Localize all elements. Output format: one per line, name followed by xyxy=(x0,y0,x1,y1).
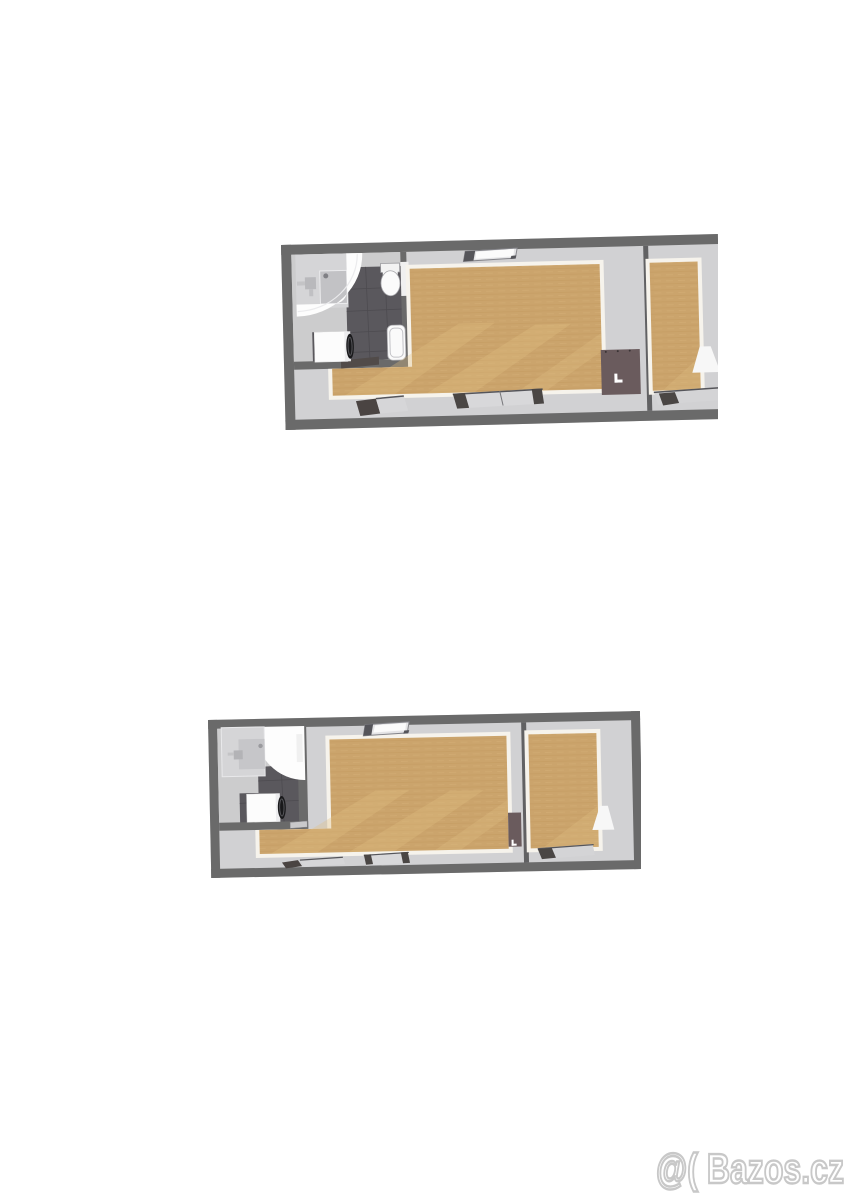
svg-text:@( Bazos.cz: @( Bazos.cz xyxy=(656,1145,844,1192)
